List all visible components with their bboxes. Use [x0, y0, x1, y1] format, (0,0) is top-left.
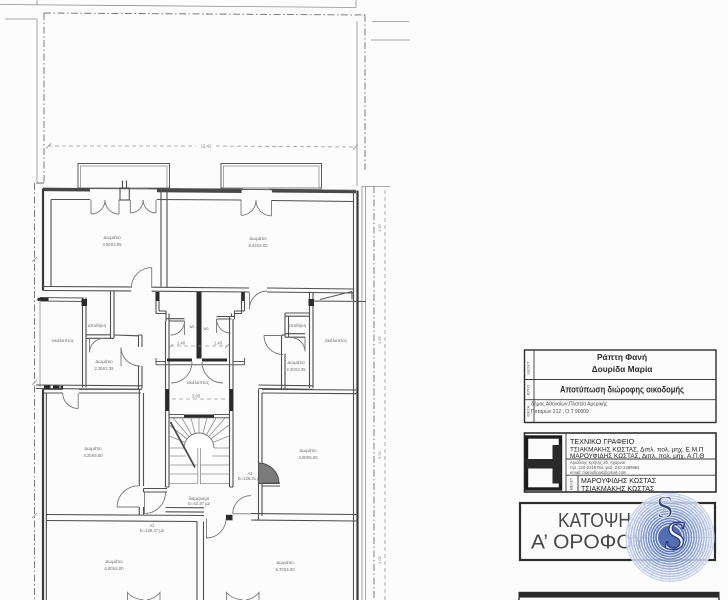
svg-text:Δωμάτιο: Δωμάτιο [276, 559, 294, 565]
svg-text:12.41: 12.41 [201, 144, 212, 149]
svg-text:4.00: 4.00 [378, 556, 382, 563]
svg-text:wc: wc [203, 326, 208, 331]
svg-text:1.40: 1.40 [177, 341, 186, 346]
svg-text:δήμος Αθηναίων,Πλατεία Αμερική: δήμος Αθηναίων,Πλατεία Αμερικής [531, 401, 608, 408]
svg-text:Ε=42.37 μ2: Ε=42.37 μ2 [188, 501, 210, 506]
svg-text:Ε=128.37 μ2: Ε=128.37 μ2 [140, 528, 165, 533]
svg-text:Αποτύπωση διώροφης οικοδομής: Αποτύπωση διώροφης οικοδομής [560, 385, 684, 395]
svg-text:Δωμάτιο: Δωμάτιο [105, 558, 123, 564]
svg-text:ΤΕΧΝΙΚΟ ΓΡΑΦΕΙΟ: ΤΕΧΝΙΚΟ ΓΡΑΦΕΙΟ [570, 437, 635, 446]
svg-text:Ράπτη Φανή: Ράπτη Φανή [597, 352, 647, 362]
svg-text:4.00Χ5.50: 4.00Χ5.50 [298, 455, 318, 460]
svg-text:email: maroufipas@gmail.com: email: maroufipas@gmail.com [570, 470, 627, 475]
svg-text:6.80Χ4.00: 6.80Χ4.00 [104, 566, 124, 571]
svg-text:6.70Χ4.00: 6.70Χ4.00 [275, 567, 295, 572]
svg-text:Δωμάτιο: Δωμάτιο [287, 359, 305, 365]
svg-text:2.60: 2.60 [192, 394, 201, 399]
svg-text:ακάλυπτος: ακάλυπτος [187, 379, 210, 385]
svg-text:3.60: 3.60 [378, 224, 382, 231]
svg-text:Δωμάτιο: Δωμάτιο [249, 235, 267, 241]
svg-text:ΕΡΓΟ: ΕΡΓΟ [526, 385, 531, 396]
svg-text:2.20Χ2.35: 2.20Χ2.35 [286, 367, 306, 372]
svg-text:8.43Χ4.00: 8.43Χ4.00 [248, 243, 268, 248]
svg-text:1.40: 1.40 [214, 341, 223, 346]
svg-text:2.85: 2.85 [378, 336, 382, 343]
svg-text:ακάλυπτος: ακάλυπτος [325, 337, 348, 343]
svg-text:wc: wc [189, 324, 194, 329]
svg-text:5.50: 5.50 [378, 451, 382, 458]
svg-text:4.20Χ5.50: 4.20Χ5.50 [83, 453, 103, 458]
svg-text:4.90Χ3.85: 4.90Χ3.85 [102, 242, 122, 247]
svg-text:ΘΕΣΗ: ΘΕΣΗ [526, 405, 531, 416]
svg-text:ΚΑΤΟΨΗ: ΚΑΤΟΨΗ [558, 510, 631, 532]
svg-text:2.35Χ2.35: 2.35Χ2.35 [94, 366, 114, 371]
svg-text:Δωμάτιο: Δωμάτιο [299, 447, 317, 453]
svg-text:αποθήκη: αποθήκη [288, 322, 307, 328]
svg-text:S: S [665, 513, 685, 558]
svg-text:ΙΔΙΟΚΤ: ΙΔΙΟΚΤ [526, 361, 531, 375]
svg-text:αποθήκη: αποθήκη [88, 322, 107, 328]
svg-text:ΤΣΙΑΚΜΑΚΗΣ ΚΩΣΤΑΣ: ΤΣΙΑΚΜΑΚΗΣ ΚΩΣΤΑΣ [581, 486, 655, 493]
svg-text:Δωμάτιο: Δωμάτιο [95, 358, 113, 364]
svg-text:ΜΕΛΕΤ: ΜΕΛΕΤ [570, 477, 574, 490]
svg-text:Δωμάτιο: Δωμάτιο [103, 234, 121, 240]
svg-text:ΜΑΡΟΥΦΙΔΗΣ ΚΩΣΤΑΣ, Διπλ. πολ.: ΜΑΡΟΥΦΙΔΗΣ ΚΩΣΤΑΣ, Διπλ. πολ. μηχ. Α.Π.Θ [570, 453, 704, 460]
svg-text:ακάλυπτος: ακάλυπτος [52, 337, 75, 343]
svg-text:Ποταμών 212 , Ο.Τ 90009: Ποταμών 212 , Ο.Τ 90009 [531, 408, 589, 415]
svg-text:ΜΑΡΟΥΦΙΔΗΣ ΚΩΣΤΑΣ: ΜΑΡΟΥΦΙΔΗΣ ΚΩΣΤΑΣ [581, 478, 657, 485]
svg-text:Δωμάτιο: Δωμάτιο [84, 445, 102, 451]
svg-text:Δουρίδα Μαρία: Δουρίδα Μαρία [592, 364, 654, 374]
